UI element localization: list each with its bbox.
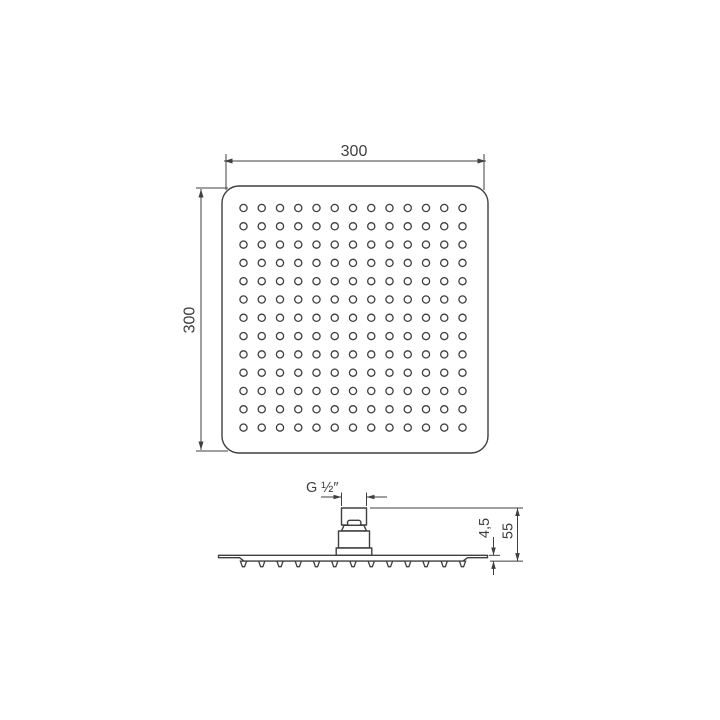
nozzle-hole bbox=[404, 296, 411, 303]
nozzle-hole bbox=[295, 278, 302, 285]
nozzle-hole bbox=[404, 369, 411, 376]
connector-collar bbox=[342, 525, 367, 531]
nozzle-hole bbox=[313, 369, 320, 376]
nozzle-hole bbox=[258, 387, 265, 394]
arrowhead bbox=[515, 553, 520, 561]
nozzle-hole bbox=[386, 406, 393, 413]
nozzle-hole bbox=[422, 296, 429, 303]
nozzle-hole bbox=[313, 406, 320, 413]
side-view: G ½″ 55 4,5 bbox=[219, 480, 524, 575]
top-width-label: 300 bbox=[341, 143, 368, 160]
nozzle-hole bbox=[386, 296, 393, 303]
nozzle-profile bbox=[350, 561, 356, 567]
nozzle-hole bbox=[368, 424, 375, 431]
nozzle-hole bbox=[313, 296, 320, 303]
nozzle-hole bbox=[459, 278, 466, 285]
height-dimension: 55 bbox=[370, 508, 523, 561]
nozzle-hole bbox=[276, 351, 283, 358]
nozzle-hole bbox=[313, 278, 320, 285]
nozzle-hole bbox=[459, 314, 466, 321]
nozzle-hole bbox=[404, 314, 411, 321]
nozzle-hole bbox=[459, 424, 466, 431]
nozzle-hole bbox=[441, 241, 448, 248]
nozzle-hole bbox=[441, 333, 448, 340]
nozzle-hole bbox=[404, 241, 411, 248]
nozzle-hole bbox=[459, 259, 466, 266]
nozzle-hole bbox=[258, 223, 265, 230]
arrowhead bbox=[491, 561, 496, 569]
top-width-dimension: 300 bbox=[224, 143, 486, 190]
nozzle-hole bbox=[459, 387, 466, 394]
nozzle-hole bbox=[404, 351, 411, 358]
nozzle-hole bbox=[313, 314, 320, 321]
nozzle-hole bbox=[459, 406, 466, 413]
nozzle-hole bbox=[349, 314, 356, 321]
nozzle-hole bbox=[422, 424, 429, 431]
connector-base bbox=[336, 548, 372, 555]
nozzle-hole bbox=[368, 241, 375, 248]
nozzle-hole bbox=[349, 204, 356, 211]
nozzle-hole bbox=[404, 387, 411, 394]
nozzle-hole bbox=[441, 259, 448, 266]
nozzle-hole bbox=[441, 314, 448, 321]
nozzle-hole bbox=[349, 278, 356, 285]
nozzle-hole bbox=[331, 351, 338, 358]
nozzle-hole bbox=[459, 351, 466, 358]
nozzle-hole bbox=[258, 278, 265, 285]
nozzle-hole bbox=[240, 369, 247, 376]
nozzle-hole bbox=[404, 333, 411, 340]
nozzle-hole bbox=[422, 259, 429, 266]
nozzle-hole bbox=[368, 259, 375, 266]
nozzle-hole bbox=[441, 369, 448, 376]
nozzle-hole bbox=[258, 406, 265, 413]
nozzle-hole bbox=[258, 259, 265, 266]
nozzle-hole bbox=[422, 351, 429, 358]
nozzle-hole bbox=[404, 424, 411, 431]
nozzle-hole bbox=[258, 424, 265, 431]
nozzle-hole bbox=[240, 333, 247, 340]
nozzle-hole bbox=[313, 223, 320, 230]
nozzle-hole bbox=[240, 424, 247, 431]
nozzle-hole bbox=[368, 278, 375, 285]
nozzle-hole bbox=[422, 204, 429, 211]
nozzle-hole bbox=[422, 241, 429, 248]
nozzle-hole bbox=[441, 223, 448, 230]
nozzle-hole bbox=[368, 314, 375, 321]
technical-drawing: 300 300 G ½″ bbox=[0, 0, 720, 720]
nozzle-hole bbox=[331, 223, 338, 230]
nozzle-hole bbox=[313, 333, 320, 340]
nozzle-hole bbox=[295, 387, 302, 394]
nozzle-hole bbox=[441, 424, 448, 431]
nozzle-hole bbox=[404, 406, 411, 413]
nozzle-hole bbox=[368, 204, 375, 211]
nozzle-hole bbox=[404, 204, 411, 211]
nozzle-hole bbox=[422, 333, 429, 340]
nozzle-profile bbox=[423, 561, 429, 567]
nozzle-hole bbox=[295, 351, 302, 358]
nozzle-hole bbox=[331, 424, 338, 431]
nozzle-hole bbox=[240, 314, 247, 321]
nozzle-hole bbox=[349, 296, 356, 303]
nozzle-hole bbox=[240, 387, 247, 394]
connector-body bbox=[339, 531, 370, 548]
nozzle-hole bbox=[313, 259, 320, 266]
nozzle-hole bbox=[459, 369, 466, 376]
nozzle-hole bbox=[313, 424, 320, 431]
nozzle-hole bbox=[240, 241, 247, 248]
nozzle-hole bbox=[258, 369, 265, 376]
nozzle-profile bbox=[295, 561, 301, 567]
nozzle-hole bbox=[240, 351, 247, 358]
nozzle-profile bbox=[240, 561, 246, 567]
nozzle-hole bbox=[295, 241, 302, 248]
nozzle-hole bbox=[240, 223, 247, 230]
nozzle-hole bbox=[349, 424, 356, 431]
nozzle-hole bbox=[331, 204, 338, 211]
nozzle-profile bbox=[405, 561, 411, 567]
nozzle-hole bbox=[258, 204, 265, 211]
nozzle-hole bbox=[276, 296, 283, 303]
nozzle-hole bbox=[422, 314, 429, 321]
nozzle-hole bbox=[422, 406, 429, 413]
nozzle-hole bbox=[349, 387, 356, 394]
nozzle-profile bbox=[386, 561, 392, 567]
nozzle-hole bbox=[276, 369, 283, 376]
nozzle-hole bbox=[459, 241, 466, 248]
nozzle-hole bbox=[386, 223, 393, 230]
nozzle-hole bbox=[295, 333, 302, 340]
thread-dimension: G ½″ bbox=[306, 480, 387, 506]
nozzle-hole bbox=[349, 351, 356, 358]
nozzle-hole bbox=[276, 259, 283, 266]
nozzle-profile bbox=[332, 561, 338, 567]
nozzle-hole bbox=[295, 296, 302, 303]
nozzle-hole bbox=[276, 241, 283, 248]
nozzle-hole bbox=[258, 314, 265, 321]
nozzle-hole bbox=[404, 223, 411, 230]
nozzle-hole bbox=[331, 259, 338, 266]
arrowhead bbox=[367, 495, 375, 500]
nozzle-hole bbox=[313, 241, 320, 248]
nozzle-hole bbox=[349, 223, 356, 230]
nozzle-profile bbox=[459, 561, 465, 567]
nozzle-row bbox=[240, 561, 465, 567]
nozzle-hole bbox=[276, 387, 283, 394]
nozzle-hole bbox=[276, 406, 283, 413]
nozzle-hole bbox=[386, 204, 393, 211]
nozzle-hole bbox=[368, 387, 375, 394]
nozzle-hole bbox=[368, 333, 375, 340]
nozzle-hole bbox=[386, 351, 393, 358]
nozzle-hole bbox=[422, 387, 429, 394]
nozzle-hole bbox=[459, 223, 466, 230]
nozzle-hole bbox=[276, 223, 283, 230]
nozzle-hole bbox=[295, 204, 302, 211]
nozzle-hole bbox=[331, 278, 338, 285]
nozzle-hole bbox=[276, 204, 283, 211]
nozzle-profile bbox=[441, 561, 447, 567]
nozzle-hole bbox=[349, 259, 356, 266]
thickness-dimension: 4,5 bbox=[477, 518, 500, 575]
nozzle-hole bbox=[276, 278, 283, 285]
top-view: 300 300 bbox=[182, 143, 488, 453]
plate-thickness-label: 4,5 bbox=[477, 518, 493, 538]
nozzle-hole bbox=[441, 351, 448, 358]
arrowhead bbox=[199, 189, 204, 198]
nozzle-hole bbox=[295, 259, 302, 266]
nozzle-hole bbox=[331, 296, 338, 303]
nozzle-hole bbox=[295, 369, 302, 376]
nozzle-hole bbox=[276, 333, 283, 340]
nozzle-hole bbox=[258, 296, 265, 303]
nozzle-hole bbox=[258, 241, 265, 248]
nozzle-hole bbox=[295, 314, 302, 321]
nozzle-hole bbox=[441, 406, 448, 413]
nozzle-profile bbox=[368, 561, 374, 567]
nozzle-hole bbox=[331, 406, 338, 413]
nozzle-hole bbox=[422, 278, 429, 285]
nozzle-hole bbox=[313, 204, 320, 211]
nozzle-hole bbox=[240, 406, 247, 413]
nozzle-hole bbox=[368, 296, 375, 303]
nozzle-hole bbox=[404, 278, 411, 285]
thread-size-label: G ½″ bbox=[306, 480, 339, 496]
nozzle-hole bbox=[386, 278, 393, 285]
drawing-canvas: 300 300 G ½″ bbox=[0, 0, 720, 720]
plate-profile bbox=[219, 555, 488, 561]
nozzle-hole bbox=[349, 369, 356, 376]
nozzle-hole bbox=[258, 351, 265, 358]
nozzle-hole bbox=[240, 259, 247, 266]
nozzle-hole bbox=[441, 387, 448, 394]
nozzle-hole bbox=[349, 406, 356, 413]
left-height-label: 300 bbox=[182, 307, 199, 334]
nozzle-hole bbox=[368, 369, 375, 376]
nozzle-hole bbox=[386, 333, 393, 340]
nozzle-hole bbox=[368, 223, 375, 230]
nozzle-profile bbox=[277, 561, 283, 567]
nozzle-hole bbox=[459, 333, 466, 340]
nozzle-hole bbox=[422, 223, 429, 230]
nozzle-hole bbox=[404, 259, 411, 266]
nozzle-hole bbox=[240, 204, 247, 211]
nozzle-hole bbox=[295, 424, 302, 431]
nozzle-hole bbox=[331, 314, 338, 321]
nozzle-hole bbox=[459, 296, 466, 303]
nozzle-hole bbox=[331, 241, 338, 248]
nozzle-profile bbox=[313, 561, 319, 567]
nozzle-hole bbox=[331, 369, 338, 376]
total-height-label: 55 bbox=[501, 523, 517, 539]
nozzle-hole bbox=[386, 314, 393, 321]
nozzle-hole bbox=[441, 204, 448, 211]
nozzle-hole bbox=[313, 387, 320, 394]
nozzle-hole bbox=[386, 424, 393, 431]
nozzle-hole bbox=[386, 387, 393, 394]
arrowhead bbox=[199, 442, 204, 451]
left-height-dimension: 300 bbox=[182, 188, 228, 451]
nozzle-hole bbox=[368, 351, 375, 358]
nozzle-hole bbox=[276, 314, 283, 321]
arrowhead bbox=[491, 548, 496, 556]
nozzle-hole bbox=[331, 387, 338, 394]
nozzle-hole bbox=[295, 223, 302, 230]
arrowhead bbox=[515, 508, 520, 516]
nozzle-hole bbox=[422, 369, 429, 376]
nozzle-hole bbox=[349, 241, 356, 248]
nozzle-hole bbox=[349, 333, 356, 340]
nozzle-profile bbox=[259, 561, 265, 567]
nozzle-hole bbox=[386, 369, 393, 376]
nozzle-hole bbox=[459, 204, 466, 211]
nozzle-hole bbox=[258, 333, 265, 340]
arrowhead bbox=[224, 159, 233, 164]
nozzle-hole bbox=[240, 278, 247, 285]
arrowhead bbox=[478, 159, 487, 164]
nozzle-hole bbox=[441, 296, 448, 303]
nozzle-hole bbox=[441, 278, 448, 285]
nozzle-hole bbox=[240, 296, 247, 303]
nozzle-hole bbox=[313, 351, 320, 358]
nozzle-hole bbox=[386, 259, 393, 266]
nozzle-hole bbox=[276, 424, 283, 431]
nozzle-hole bbox=[368, 406, 375, 413]
nozzle-hole bbox=[295, 406, 302, 413]
nozzle-hole bbox=[386, 241, 393, 248]
nozzle-hole bbox=[331, 333, 338, 340]
